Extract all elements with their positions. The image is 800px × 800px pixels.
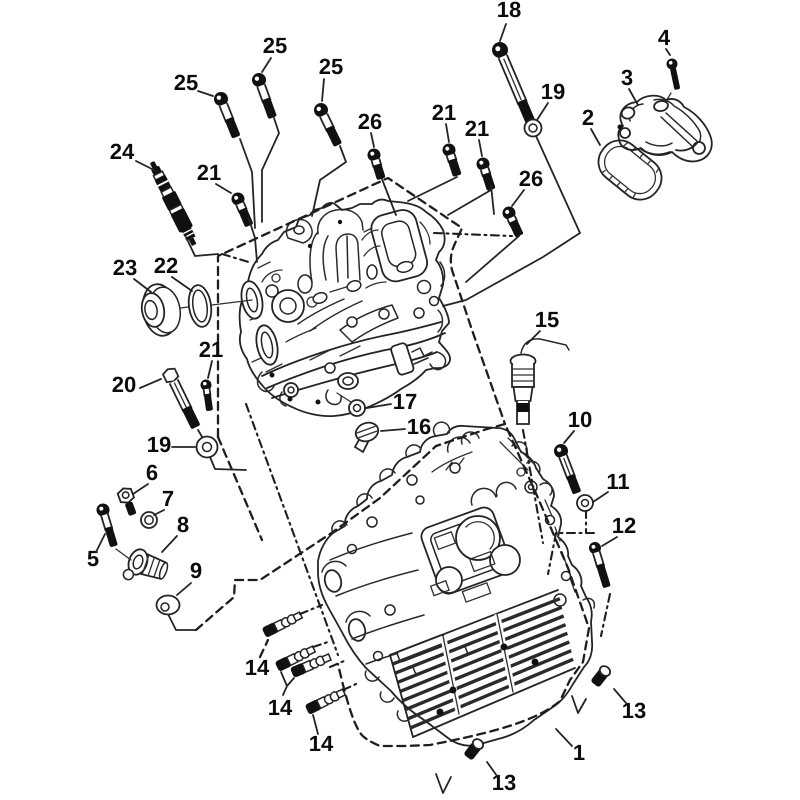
svg-text:9: 9: [190, 558, 202, 583]
svg-text:1: 1: [573, 740, 585, 765]
svg-text:25: 25: [263, 33, 288, 58]
svg-text:15: 15: [535, 307, 560, 332]
svg-text:19: 19: [147, 432, 172, 457]
svg-text:26: 26: [519, 166, 544, 191]
svg-text:4: 4: [658, 25, 671, 50]
svg-text:14: 14: [245, 655, 270, 680]
svg-text:14: 14: [268, 695, 293, 720]
svg-text:10: 10: [568, 407, 593, 432]
svg-text:19: 19: [541, 79, 566, 104]
svg-text:16: 16: [407, 414, 432, 439]
svg-text:22: 22: [154, 253, 179, 278]
svg-text:20: 20: [112, 372, 137, 397]
svg-text:25: 25: [174, 70, 199, 95]
svg-text:17: 17: [393, 389, 418, 414]
svg-text:26: 26: [358, 109, 383, 134]
svg-text:3: 3: [621, 65, 633, 90]
svg-text:14: 14: [309, 731, 334, 756]
svg-text:21: 21: [197, 160, 222, 185]
svg-text:8: 8: [177, 512, 189, 537]
svg-text:21: 21: [199, 337, 224, 362]
svg-text:2: 2: [582, 105, 594, 130]
svg-text:11: 11: [606, 469, 629, 494]
svg-text:6: 6: [146, 460, 158, 485]
svg-text:12: 12: [612, 513, 637, 538]
svg-text:21: 21: [465, 116, 490, 141]
svg-text:23: 23: [113, 255, 138, 280]
svg-text:21: 21: [432, 100, 457, 125]
svg-text:7: 7: [162, 486, 174, 511]
svg-text:18: 18: [497, 0, 522, 22]
svg-text:25: 25: [319, 54, 344, 79]
svg-text:24: 24: [110, 139, 135, 164]
